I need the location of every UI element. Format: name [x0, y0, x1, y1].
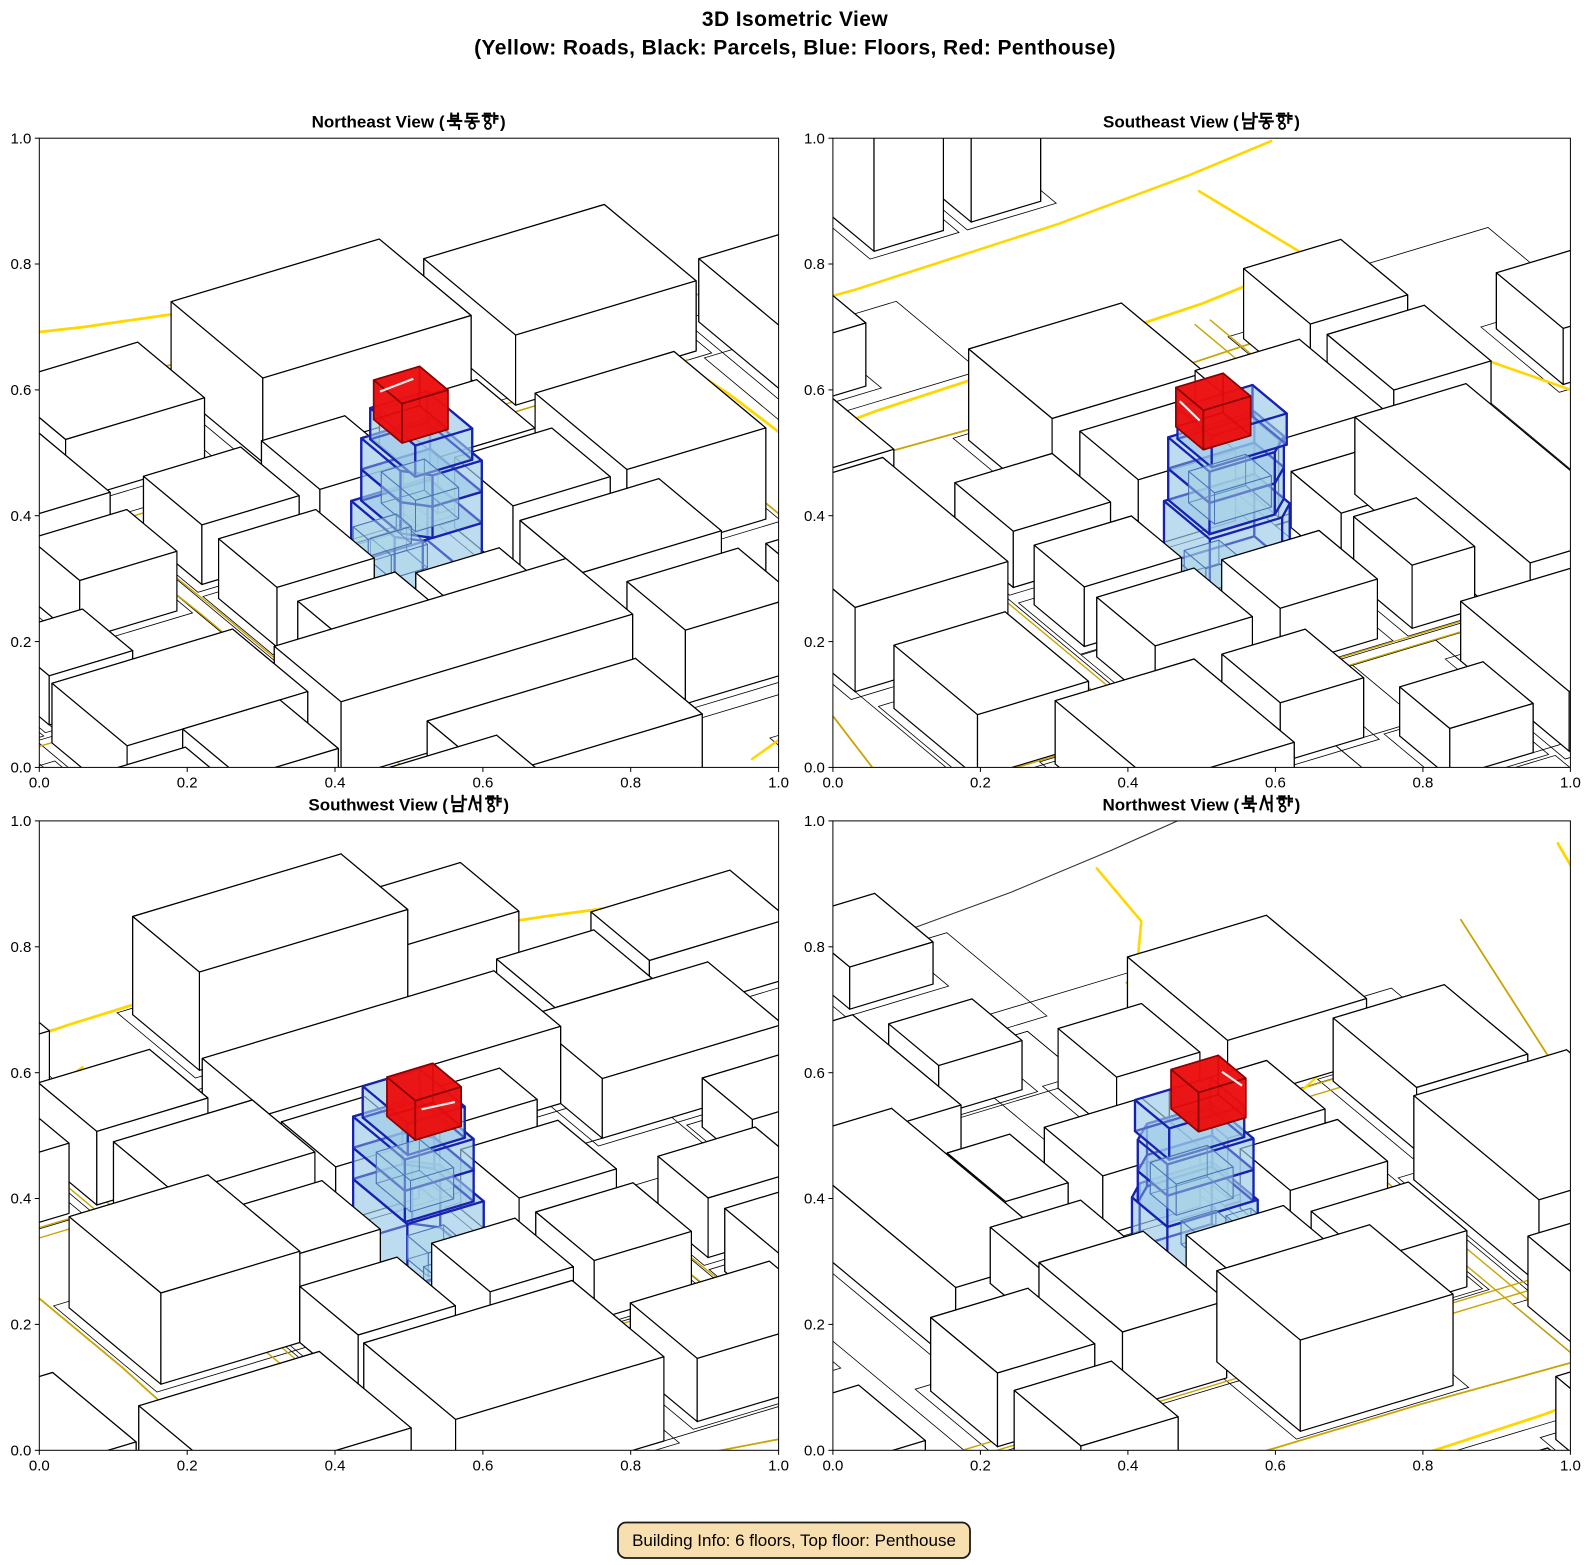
- svg-text:1.0: 1.0: [10, 130, 31, 147]
- svg-text:0.2: 0.2: [970, 1457, 991, 1474]
- svg-text:0.0: 0.0: [10, 760, 31, 777]
- svg-text:0.6: 0.6: [10, 382, 31, 399]
- svg-text:0.8: 0.8: [1412, 1457, 1433, 1474]
- svg-text:0.0: 0.0: [10, 1443, 31, 1460]
- svg-text:0.0: 0.0: [822, 774, 843, 791]
- svg-text:0.4: 0.4: [325, 1457, 346, 1474]
- svg-text:0.6: 0.6: [1265, 1457, 1286, 1474]
- svg-text:0.8: 0.8: [1412, 774, 1433, 791]
- svg-text:Southeast View (: Southeast View (: [1103, 113, 1239, 132]
- svg-text:0.6: 0.6: [1265, 774, 1286, 791]
- svg-text:(Yellow: Roads, Black: Parcels: (Yellow: Roads, Black: Parcels, Blue: Fl…: [474, 37, 1116, 60]
- svg-text:0.0: 0.0: [822, 1457, 843, 1474]
- svg-text:0.0: 0.0: [29, 1457, 50, 1474]
- svg-text:1.0: 1.0: [804, 813, 825, 830]
- svg-text:1.0: 1.0: [10, 813, 31, 830]
- svg-text:): ): [1294, 113, 1300, 132]
- svg-text:0.6: 0.6: [804, 382, 825, 399]
- svg-text:3D Isometric View: 3D Isometric View: [702, 8, 888, 31]
- svg-text:0.2: 0.2: [10, 634, 31, 651]
- svg-text:0.4: 0.4: [804, 1191, 825, 1208]
- svg-text:1.0: 1.0: [768, 1457, 789, 1474]
- svg-text:0.2: 0.2: [177, 774, 198, 791]
- svg-text:1.0: 1.0: [768, 774, 789, 791]
- svg-text:): ): [1295, 795, 1301, 814]
- svg-text:0.6: 0.6: [472, 1457, 493, 1474]
- svg-text:0.4: 0.4: [1117, 1457, 1138, 1474]
- svg-text:Northwest View (: Northwest View (: [1103, 795, 1240, 814]
- svg-text:0.0: 0.0: [804, 760, 825, 777]
- svg-text:0.8: 0.8: [620, 774, 641, 791]
- svg-text:0.6: 0.6: [472, 774, 493, 791]
- svg-text:): ): [500, 113, 506, 132]
- svg-text:Building Info: 6 floors, Top f: Building Info: 6 floors, Top floor: Pent…: [632, 1531, 956, 1550]
- svg-text:0.4: 0.4: [1117, 774, 1138, 791]
- svg-text:0.4: 0.4: [804, 508, 825, 525]
- svg-text:): ): [503, 795, 509, 814]
- svg-text:0.4: 0.4: [325, 774, 346, 791]
- svg-text:0.8: 0.8: [10, 256, 31, 273]
- svg-text:0.0: 0.0: [804, 1443, 825, 1460]
- svg-text:1.0: 1.0: [1560, 1457, 1581, 1474]
- svg-text:1.0: 1.0: [1560, 774, 1581, 791]
- svg-text:Northeast View (: Northeast View (: [312, 113, 445, 132]
- svg-text:0.2: 0.2: [804, 634, 825, 651]
- svg-text:0.4: 0.4: [10, 1191, 31, 1208]
- svg-text:0.6: 0.6: [10, 1065, 31, 1082]
- svg-text:0.8: 0.8: [620, 1457, 641, 1474]
- svg-text:0.8: 0.8: [804, 939, 825, 956]
- svg-text:Southwest View (: Southwest View (: [308, 795, 448, 814]
- svg-text:1.0: 1.0: [804, 130, 825, 147]
- svg-text:0.0: 0.0: [29, 774, 50, 791]
- svg-text:0.6: 0.6: [804, 1065, 825, 1082]
- svg-text:0.2: 0.2: [804, 1317, 825, 1334]
- svg-text:0.8: 0.8: [804, 256, 825, 273]
- svg-text:0.4: 0.4: [10, 508, 31, 525]
- svg-text:0.8: 0.8: [10, 939, 31, 956]
- svg-text:0.2: 0.2: [177, 1457, 198, 1474]
- svg-text:0.2: 0.2: [970, 774, 991, 791]
- svg-text:0.2: 0.2: [10, 1317, 31, 1334]
